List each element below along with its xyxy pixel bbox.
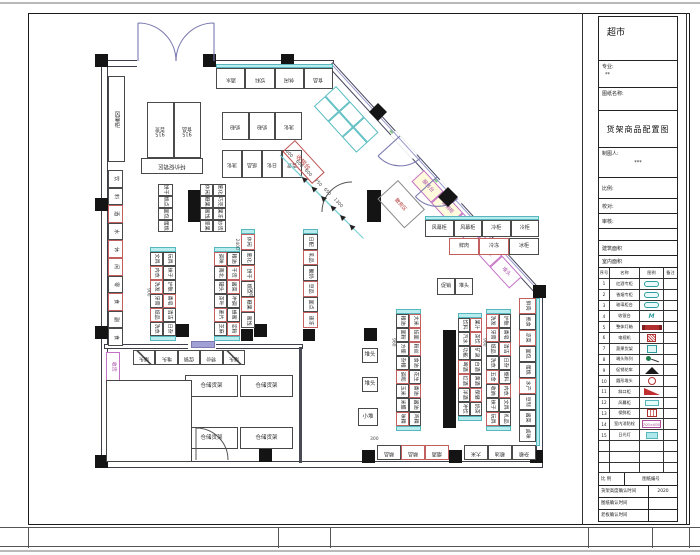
legend-no (599, 452, 610, 462)
footer-value (649, 498, 677, 509)
bottom-edge-line (0, 550, 700, 552)
column (241, 329, 253, 341)
legend-name: 玻璃柜台 (610, 301, 640, 311)
scale-row: 比例: (599, 178, 677, 199)
legend-symbol (640, 322, 664, 332)
sheet-divider (582, 13, 583, 525)
shelf-cell: 日配 (303, 234, 318, 250)
legend-name: 风幕柜 (610, 398, 640, 408)
shelf-cell: 饮料 (245, 68, 274, 89)
legend-symbol (640, 365, 664, 375)
dim-label: 900 (145, 288, 150, 297)
legend-name: 室内消防栓 (610, 419, 640, 429)
wall-shelf-strip (536, 298, 540, 446)
legend-note (664, 322, 677, 332)
legend-symbol (640, 398, 664, 408)
legend-note (664, 463, 677, 473)
shelf-end-panel (188, 190, 200, 222)
shelf-cell: 南北 (214, 266, 227, 280)
shelf-cell: 乳品 (303, 250, 318, 266)
shelf-cell: 食品 (304, 68, 333, 89)
legend-header-no: 序号 (599, 268, 610, 278)
legend-row: 10圆形堆头 (599, 376, 677, 387)
wall-shelf-run-top: 酒水饮料休闲食品 (216, 68, 333, 89)
legend-no (599, 441, 610, 451)
pallet-display: 堆头 (362, 377, 378, 392)
shelf-cell: 矿泉 (470, 346, 482, 360)
legend-note (664, 452, 677, 462)
legend-symbol (640, 441, 664, 451)
gondola: 日配乳品酸奶豆品面点速冻 (303, 234, 318, 328)
shelf-cell: 特价 (200, 350, 222, 365)
air-curtain-cabinet: 风幕柜 (108, 76, 125, 162)
shelf-cell: 日化 (262, 150, 282, 178)
red-circle-icon (648, 377, 656, 385)
major-label: 专业: (599, 61, 677, 70)
shelf-cell: 堆头 (155, 350, 177, 365)
shelf-endcap (458, 416, 482, 421)
shelf-cell: 果冻 (213, 208, 226, 220)
shelf-cell: 内衣 (150, 266, 163, 280)
shelf-cell: 日杂 (163, 322, 176, 336)
shelf-cell: 牙膏 (486, 328, 499, 342)
shelf-cell: 大米 (464, 445, 488, 460)
legend-row (599, 452, 677, 463)
legend-name: 红酒专柜 (610, 279, 640, 289)
legend-no: 5 (599, 322, 610, 332)
shelf-cell: 方便 (396, 342, 409, 356)
legend-name: 蔬果货架 (610, 344, 640, 354)
shelf-cell: 汽水 (458, 332, 470, 346)
shelf-cell: 酱油 (409, 398, 422, 412)
legend-header-note: 备注 (664, 268, 677, 278)
shelf-cell: 酸奶 (303, 265, 318, 281)
legend-no (599, 463, 610, 473)
shelf-cell: 915百货 (147, 102, 174, 158)
legend-symbol: M (640, 311, 664, 321)
shelf-cell: 香皂 (163, 294, 176, 308)
footer-label: 老板确认时间 (599, 510, 649, 521)
title-block-project: 超市 (599, 17, 677, 61)
legend-name: 香烟专柜 (610, 290, 640, 300)
footer-label: 图纸确认时间 (599, 498, 649, 509)
drawing-name: 货架商品配置图 (599, 111, 677, 148)
shelf-cell: 糖果 (241, 297, 255, 313)
legend-symbol (640, 344, 664, 354)
shelf-cell: 收货 (106, 352, 120, 382)
shelf-cell: 内衣 (499, 384, 512, 398)
column (176, 324, 189, 337)
legend-symbol (640, 376, 664, 386)
legend-symbol (640, 279, 664, 289)
mm-icon: M (649, 313, 655, 320)
footer-row-drawing-confirm: 图纸确认时间 (599, 498, 677, 510)
shelf-cell: 零 (108, 276, 123, 294)
shelf-cell: 淀粉 (227, 322, 240, 336)
legend-row: 13保鲜柜 (599, 409, 677, 420)
shelf-cell: 料 (108, 188, 123, 206)
shelf-cell: 玉米 (396, 384, 409, 398)
legend-note (664, 441, 677, 451)
title-block: 超市 专业: ** 图纸名称: 货架商品配置图 制图人: *** 比例: 校对:… (598, 16, 678, 522)
shelf-end-panel (367, 190, 381, 222)
shelf-cell: 烟酒 (425, 445, 449, 460)
legend-no: 11 (599, 387, 610, 397)
shelf-cell: 护肤 (499, 314, 512, 328)
shelf-cell: 饼干 (158, 184, 173, 196)
legend-note (664, 279, 677, 289)
shelf-cell: 大米 (409, 314, 422, 328)
shelf-cell: 休闲 (275, 68, 304, 89)
shelf-cell: 干货 (227, 266, 240, 280)
legend-row (599, 441, 677, 452)
tri-icon (645, 367, 659, 374)
legend-name: 整体灯箱 (610, 322, 640, 332)
shelf-cell: 酒水 (216, 68, 245, 89)
column (533, 285, 546, 298)
shelf-cell: 饮料 (458, 318, 470, 332)
legend-row: 1红酒专柜 (599, 279, 677, 290)
column (203, 54, 216, 67)
legend-row: 9促销花车 (599, 365, 677, 376)
block-915: 915百货915食品 (147, 102, 201, 158)
legend-name (610, 452, 640, 462)
shelf-cell: 调和 (396, 370, 409, 384)
footer-row-height-confirm: 货架高度确认时间 2020 (599, 486, 677, 498)
shelf-cell: 风幕柜 (454, 220, 483, 237)
shelf-cell: 蜜饯 (200, 208, 213, 220)
shelf-cell: 清洁 (163, 308, 176, 322)
legend-symbol: 700×600 (640, 419, 664, 429)
shelf-cell: 冷柜 (482, 220, 511, 237)
legend-no: 10 (599, 376, 610, 386)
wall-shelf-run-right: 鲜肉熟食凉菜面包蛋糕水产豆制酱菜卤味 (519, 298, 536, 442)
legend-note (664, 430, 677, 440)
legend-row: 5整体灯箱 (599, 322, 677, 333)
shelf-cell: 粮油 (227, 252, 240, 266)
legend-note (664, 333, 677, 343)
shelf-cell: 礼品 (499, 412, 512, 426)
legend-no: 6 (599, 333, 610, 343)
shelf-cell: 冰柜 (509, 238, 539, 255)
shelf-cell: 端头 (223, 350, 245, 365)
shelf-cell: 精品 (401, 445, 425, 460)
legend-no: 4 (599, 311, 610, 321)
footer-value: 2020 (649, 486, 677, 497)
shelf-cell: 调味 (214, 252, 227, 266)
drawing-name-label: 图纸名称: (599, 88, 677, 97)
legend-name (610, 463, 640, 473)
legend-row: 4收银台M (599, 311, 677, 322)
shelf-cell: 面粉 (396, 328, 409, 342)
legend-symbol (640, 355, 664, 365)
gondola: 洗发护肤牙膏香皂纸品清洁洗衣日杂五金塑料收纳内衣袜子文具玩具礼品 (486, 314, 511, 426)
shelf-cell: 五金 (486, 370, 499, 384)
shelf-cell: 奶茶 (470, 402, 482, 416)
wall-bottom (101, 461, 543, 468)
gondola: 休闲膨化饼干糕点糖果蜜饯 (241, 234, 255, 328)
shelf-cell: 麦片 (214, 308, 227, 322)
legend-note (664, 311, 677, 321)
shelf-endcap (486, 426, 511, 431)
shelf-cell: 堆头 (455, 278, 473, 295)
shelf-cell: 洗发 (486, 314, 499, 328)
shelf-cell: 日杂 (499, 356, 512, 370)
shelf-cell: 袜子 (163, 266, 176, 280)
legend-table: 1红酒专柜2香烟专柜3玻璃柜台4收银台M5整体灯箱6电视机7蔬果货架8端头陈列9… (599, 279, 677, 473)
legend-no: 14 (599, 419, 610, 429)
legend-header: 序号 名称 图例 备注 (599, 268, 677, 279)
dim-label: 960 (390, 338, 395, 347)
shelf-cell: 鸡精 (409, 412, 422, 426)
drafter-label: 制图人: (599, 148, 677, 157)
major-value: ** (599, 70, 677, 78)
shelf-cell: 副 (108, 311, 123, 329)
magenta-box-icon: 700×600 (642, 420, 662, 428)
shelf-cell: 蜂蜜 (227, 308, 240, 322)
legend-name: 端头陈列 (610, 355, 640, 365)
shelf-cell: 膨化 (213, 184, 226, 196)
shelf-cell: 红酒 (458, 374, 470, 388)
shelf-cell: 袜子 (486, 398, 499, 412)
shelf-cell: 米醋 (396, 398, 409, 412)
interior-area-row: 室内面积 (599, 256, 677, 268)
shelf-cell: 精品 (377, 445, 401, 460)
shelf-cell: 熟食 (519, 314, 536, 330)
promo-shelf: 特价促销区 (141, 158, 203, 174)
shelf-cell: 端头 (133, 350, 155, 365)
sheet-right-inner-line (686, 13, 687, 525)
shelf-cell: 面包 (519, 346, 536, 362)
shelf-cell: 味精 (396, 412, 409, 426)
shelf-cell: 啤酒 (458, 360, 470, 374)
footer-label: 货架高度确认时间 (599, 486, 649, 497)
shelf-cell: 酱菜 (227, 280, 240, 294)
red-hatch-icon (647, 334, 656, 342)
legend-no: 2 (599, 290, 610, 300)
shelf-cell: 白酒 (470, 360, 482, 374)
shelf-cell: 饮 (108, 170, 123, 188)
legend-no: 8 (599, 355, 610, 365)
legend-no: 7 (599, 344, 610, 354)
legend-symbol (640, 301, 664, 311)
legend-no: 15 (599, 430, 610, 440)
shelf-cell: 膨化 (241, 250, 255, 266)
legend-name: 电视机 (610, 333, 640, 343)
shelf-cell: 洗化 (275, 112, 302, 140)
teal-pill-icon (644, 302, 659, 308)
shelf-cell: 面包 (158, 208, 173, 220)
shelf-cell: 冲饮 (458, 402, 470, 416)
legend-note (664, 344, 677, 354)
shelf-cell: 罐头 (214, 280, 227, 294)
shelf-cell: 酒 (108, 205, 123, 223)
legend-row: 3玻璃柜台 (599, 301, 677, 312)
legend-no: 12 (599, 398, 610, 408)
teal-sq-icon (647, 345, 657, 353)
title-block-drafter: 制图人: *** (599, 148, 677, 178)
shelf-cell: 冷冻 (479, 238, 509, 255)
wall-shelf-run-bottom: 大米粮油杂粮 (464, 445, 536, 460)
shelf-cell: 香皂 (499, 328, 512, 342)
footer-label: 比 例 (599, 473, 625, 484)
shelf-cell: 果汁 (470, 318, 482, 332)
shelf-cell: 鲜肉 (519, 298, 536, 314)
shelf-cell: 食 (108, 293, 123, 311)
shelf-cell: 炒货 (213, 220, 226, 232)
shelf-endcap (396, 426, 421, 431)
legend-note (664, 419, 677, 429)
red-box-icon (647, 409, 657, 417)
shelf-cell: 闲 (108, 258, 123, 276)
footer-value (649, 510, 677, 521)
legend-row: 11斜口柜 (599, 387, 677, 398)
drafter-value: *** (599, 157, 677, 166)
pallet-display: 小堆 (358, 408, 378, 426)
column (364, 328, 377, 341)
legend-name: 收银台 (610, 311, 640, 321)
shelf-cell: 蛋糕 (519, 362, 536, 378)
legend-symbol (640, 333, 664, 343)
legend-no: 9 (599, 365, 610, 375)
shelf-cell: 粉丝 (409, 342, 422, 356)
legend-row: 8端头陈列 (599, 355, 677, 366)
dim-label: 900 (247, 288, 252, 297)
shelf-cell: 香油 (409, 384, 422, 398)
legend-name: 促销花车 (610, 365, 640, 375)
shelf-cell: 粮油 (396, 314, 409, 328)
teal-pill-icon (644, 281, 659, 287)
building-area-row: 建筑面积 (599, 241, 677, 256)
legend-note (664, 409, 677, 419)
shelf-cell: 卤味 (519, 426, 536, 442)
shelf-cell: 水产 (519, 378, 536, 394)
bottom-strip (0, 527, 700, 547)
legend-name (610, 441, 640, 451)
column (95, 198, 108, 211)
shelf-cell: 挂面 (409, 328, 422, 342)
shelf-cell: 休闲 (200, 184, 213, 196)
column (259, 449, 272, 462)
shelf-cell: 食油 (409, 356, 422, 370)
shelf-cell: 冷柜 (511, 220, 540, 237)
back-room (106, 380, 192, 462)
blank-row (599, 229, 677, 241)
shelf-cell: 促销 (178, 350, 200, 365)
endcap-row: 端头堆头促销特价端头 (133, 350, 245, 365)
shelf-cell: 纸品 (150, 308, 163, 322)
red-flag-icon (644, 388, 660, 395)
footer-row-boss-confirm: 老板确认时间 (599, 510, 677, 521)
legend-row: 2香烟专柜 (599, 290, 677, 301)
legend-header-symbol: 图例 (640, 268, 664, 278)
shelf-cell: 牙膏 (150, 294, 163, 308)
column (95, 54, 108, 67)
freezer-run: 鲜肉冷冻冰柜 (449, 238, 539, 255)
project-title: 超市 (599, 17, 677, 38)
dim-label: 2400 (233, 239, 238, 250)
legend-name: 日光灯 (610, 430, 640, 440)
partition-door-slab (191, 341, 215, 348)
cyan-tag-icon (645, 400, 659, 406)
dim-label: 300 (370, 438, 379, 443)
shelf-cell: 奶粉 (249, 112, 276, 140)
legend-row: 12风幕柜 (599, 398, 677, 409)
shelf-cell: 茶叶 (214, 294, 227, 308)
receiving-cell: 收货 (106, 352, 120, 382)
shelf-cell: 915食品 (174, 102, 201, 158)
shelf-cell: 洋酒 (458, 388, 470, 402)
shelf-cell: 粮油 (488, 445, 512, 460)
shelf-cell: 面点 (303, 297, 318, 313)
shelf-block: 促销堆头 (437, 278, 473, 295)
shelf-endcap (150, 336, 176, 341)
legend-symbol (640, 452, 664, 462)
shelf-cell: 风幕柜 (425, 220, 454, 237)
shelf-end-panel (443, 330, 456, 428)
shelf-cell: 护肤 (163, 280, 176, 294)
legend-note (664, 290, 677, 300)
check-row: 校对: (599, 199, 677, 214)
shelf-cell: 豆制 (519, 394, 536, 410)
legend-note (664, 365, 677, 375)
legend-no: 13 (599, 409, 610, 419)
column (362, 450, 375, 463)
shelf-cell: 杂粮 (396, 356, 409, 370)
legend-note (664, 355, 677, 365)
shelf-cell: 奶粉 (222, 112, 249, 140)
shelf-cell: 饼干 (241, 265, 255, 281)
shelf-cell: 豆品 (303, 281, 318, 297)
column (95, 326, 108, 339)
legend-symbol (640, 430, 664, 440)
shelf-cell: 糕点 (158, 196, 173, 208)
shelf-cell: 巧克 (213, 196, 226, 208)
storage-rack: 仓储货架 (185, 375, 238, 397)
storage-rack: 仓储货架 (240, 427, 293, 449)
shelf-cell: 洗化 (222, 150, 242, 178)
shelf-cell: 酱菜 (519, 410, 536, 426)
shelf-cell: 文具 (150, 252, 163, 266)
legend-no: 1 (599, 279, 610, 289)
legend-row: 7蔬果货架 (599, 344, 677, 355)
shelf-cell: 清洁 (499, 342, 512, 356)
shelf-cell: 促销 (437, 278, 455, 295)
teal-pill-icon (644, 292, 659, 298)
freezer-run: 风幕柜风幕柜冷柜冷柜 (425, 220, 539, 237)
gondola: 休闲膨化糖果巧克蜜饯果冻坚果炒货 (200, 184, 226, 232)
wall-shelf-run-bottom: 精品精品烟酒 (377, 445, 449, 460)
storage-rack: 仓储货架 (240, 375, 293, 397)
legend-name: 斜口柜 (610, 387, 640, 397)
gondola: 饼干糕点面包蛋糕 (158, 184, 173, 232)
shelf-block: 奶粉奶粉洗化 (222, 112, 302, 140)
legend-symbol (640, 463, 664, 473)
top-edge-line (0, 2, 700, 4)
legend-note (664, 387, 677, 397)
column (449, 450, 462, 463)
footer-row-scale: 比 例 图纸编号 (599, 473, 677, 485)
dim-label: 960 (481, 338, 486, 347)
legend-name: 圆形堆头 (610, 376, 640, 386)
shelf-cell: 水 (108, 223, 123, 241)
shelf-cell: 冲调 (227, 294, 240, 308)
red-bar-icon (642, 325, 662, 330)
shelf-cell: 收纳 (486, 384, 499, 398)
legend-row: 15日光灯 (599, 430, 677, 441)
legend-note (664, 376, 677, 386)
door-hinge-icon (389, 129, 394, 134)
